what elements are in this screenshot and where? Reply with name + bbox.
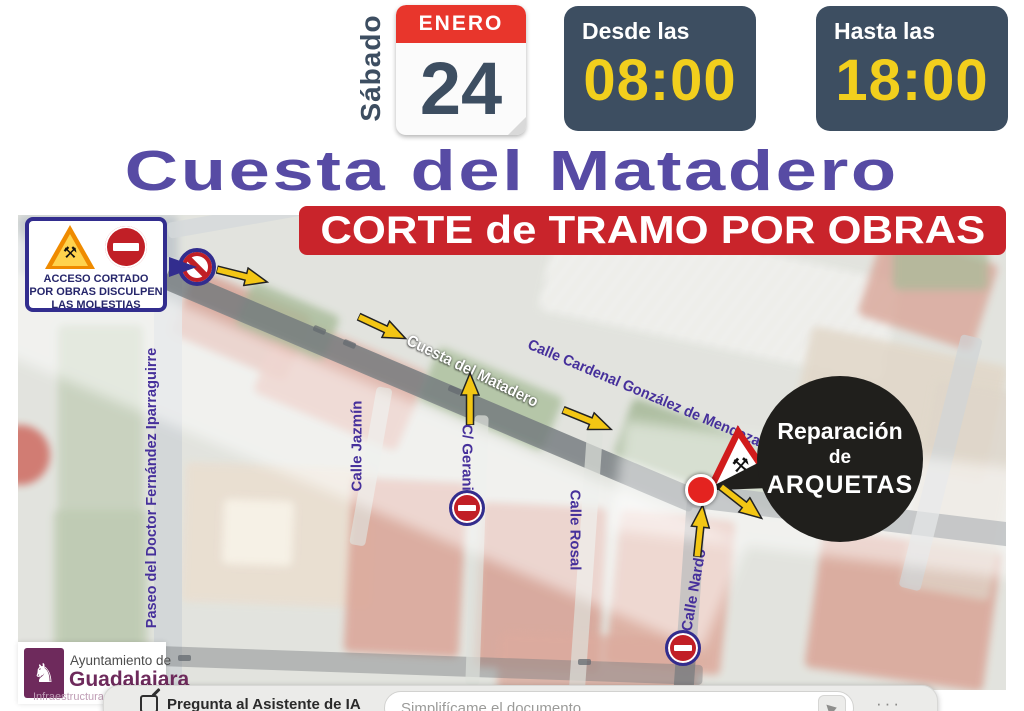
- work-location-dot: [685, 474, 717, 506]
- council-name-line1: Ayuntamiento de: [70, 653, 171, 668]
- time-until-label: Hasta las: [834, 18, 1008, 45]
- arquetas-balloon: Reparación de ARQUETAS: [757, 376, 923, 542]
- callout-text-line: POR OBRAS DISCULPEN: [29, 286, 162, 299]
- time-from-label: Desde las: [582, 18, 756, 45]
- weekday-label: Sábado: [355, 14, 387, 121]
- time-until-box: Hasta las 18:00: [816, 6, 1008, 131]
- ai-question-input[interactable]: [384, 691, 854, 711]
- roadworks-warning-triangle-icon: ⚒: [45, 225, 95, 269]
- ai-assistant-label: Pregunta al Asistente de IA: [167, 696, 361, 711]
- page-title-text: Cuesta del Matadero: [125, 138, 899, 204]
- callout-pointer: [169, 257, 197, 277]
- balloon-text-line: Reparación: [777, 418, 902, 445]
- no-entry-sign-icon: [105, 226, 147, 268]
- ai-assistant-bar[interactable]: Pregunta al Asistente de IA ···: [103, 685, 938, 711]
- callout-signs: ⚒: [45, 225, 147, 269]
- aerial-map: Cuesta del Matadero Calle Cardenal Gonzá…: [18, 215, 1006, 690]
- more-options-icon[interactable]: ···: [876, 694, 902, 711]
- time-from-box: Desde las 08:00: [564, 6, 756, 131]
- council-department: Infraestructuras: [33, 691, 109, 703]
- time-from-value: 08:00: [564, 47, 756, 114]
- callout-text-line: ACCESO CORTADO: [44, 273, 149, 286]
- worker-glyph: ⚒: [63, 243, 77, 263]
- ai-assistant-icon: [140, 695, 158, 711]
- street-label-calle-jazmin: Calle Jazmín: [349, 401, 366, 492]
- closure-banner-text: CORTE de TRAMO POR OBRAS: [320, 209, 985, 253]
- send-arrow-icon: [826, 702, 838, 711]
- callout-text-line: LAS MOLESTIAS: [51, 299, 140, 312]
- balloon-text-line: ARQUETAS: [767, 471, 913, 500]
- closure-banner: CORTE de TRAMO POR OBRAS: [299, 206, 1006, 255]
- calendar-day-number: 24: [396, 43, 526, 133]
- send-button[interactable]: [818, 695, 846, 711]
- calendar-icon: ENERO 24: [396, 5, 526, 135]
- page-title: Cuesta del Matadero: [0, 138, 1024, 204]
- no-entry-sign-icon: [449, 490, 485, 526]
- street-label-paseo-doctor-fernandez-iparraguirre: Paseo del Doctor Fernández Iparraguirre: [144, 348, 160, 628]
- street-label-calle-geranio: C/ Geranio: [459, 424, 476, 500]
- time-until-value: 18:00: [816, 47, 1008, 114]
- calendar-page-fold: [508, 117, 526, 135]
- no-entry-bar: [674, 645, 692, 651]
- no-entry-bar: [113, 243, 139, 251]
- calendar-month: ENERO: [396, 5, 526, 43]
- no-entry-sign-icon: [665, 630, 701, 666]
- street-label-calle-rosal: Calle Rosal: [567, 490, 584, 571]
- direction-arrow-icon: [460, 371, 480, 425]
- access-cut-callout: ⚒ ACCESO CORTADO POR OBRAS DISCULPEN LAS…: [25, 217, 167, 312]
- ai-assistant-prompt[interactable]: Pregunta al Asistente de IA: [140, 695, 361, 711]
- roadworks-notice-poster: Sábado ENERO 24 Desde las 08:00 Hasta la…: [0, 0, 1024, 711]
- no-entry-bar: [458, 505, 476, 511]
- balloon-text-line: de: [829, 447, 851, 469]
